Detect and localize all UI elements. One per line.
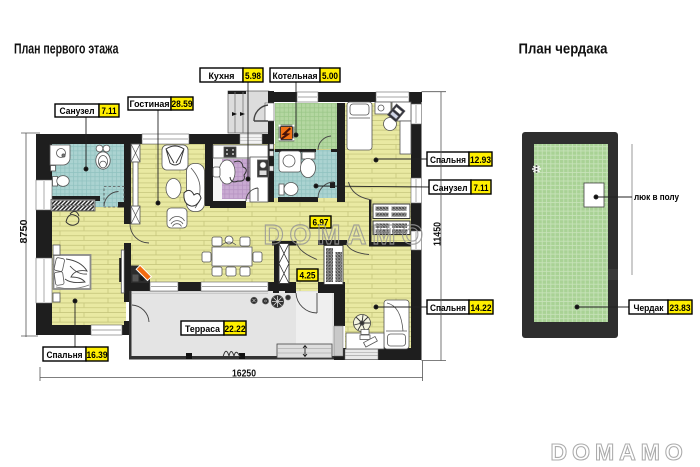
svg-text:План первого этажа: План первого этажа: [14, 42, 119, 58]
svg-text:Терраса: Терраса: [185, 324, 221, 334]
svg-text:16250: 16250: [232, 367, 256, 379]
svg-text:7.11: 7.11: [474, 183, 489, 193]
svg-text:Котельная: Котельная: [273, 71, 318, 81]
svg-text:DOMAMO: DOMAMO: [551, 439, 688, 465]
svg-text:8750: 8750: [18, 219, 30, 243]
svg-text:23.83: 23.83: [670, 303, 691, 313]
svg-text:люк в полу: люк в полу: [634, 192, 679, 202]
svg-text:12.93: 12.93: [470, 155, 491, 165]
svg-text:Спальня: Спальня: [430, 303, 466, 313]
svg-text:5.98: 5.98: [245, 71, 261, 81]
svg-text:22.22: 22.22: [225, 324, 246, 334]
svg-text:Спальня: Спальня: [47, 350, 83, 360]
svg-text:Санузел: Санузел: [433, 183, 468, 193]
svg-text:28.59: 28.59: [172, 99, 193, 109]
svg-text:16.39: 16.39: [87, 350, 108, 360]
svg-text:14.22: 14.22: [471, 303, 492, 313]
svg-text:План чердака: План чердака: [519, 42, 609, 58]
svg-text:Санузел: Санузел: [60, 106, 95, 116]
svg-text:11450: 11450: [432, 222, 444, 246]
svg-text:Спальня: Спальня: [430, 155, 466, 165]
svg-text:Чердак: Чердак: [634, 303, 664, 313]
svg-text:Гостиная: Гостиная: [130, 99, 170, 109]
svg-text:5.00: 5.00: [322, 71, 338, 81]
svg-text:4.25: 4.25: [300, 271, 316, 281]
svg-text:Кухня: Кухня: [209, 71, 235, 81]
svg-text:DOMAMO: DOMAMO: [264, 219, 429, 250]
svg-text:7.11: 7.11: [102, 106, 117, 116]
